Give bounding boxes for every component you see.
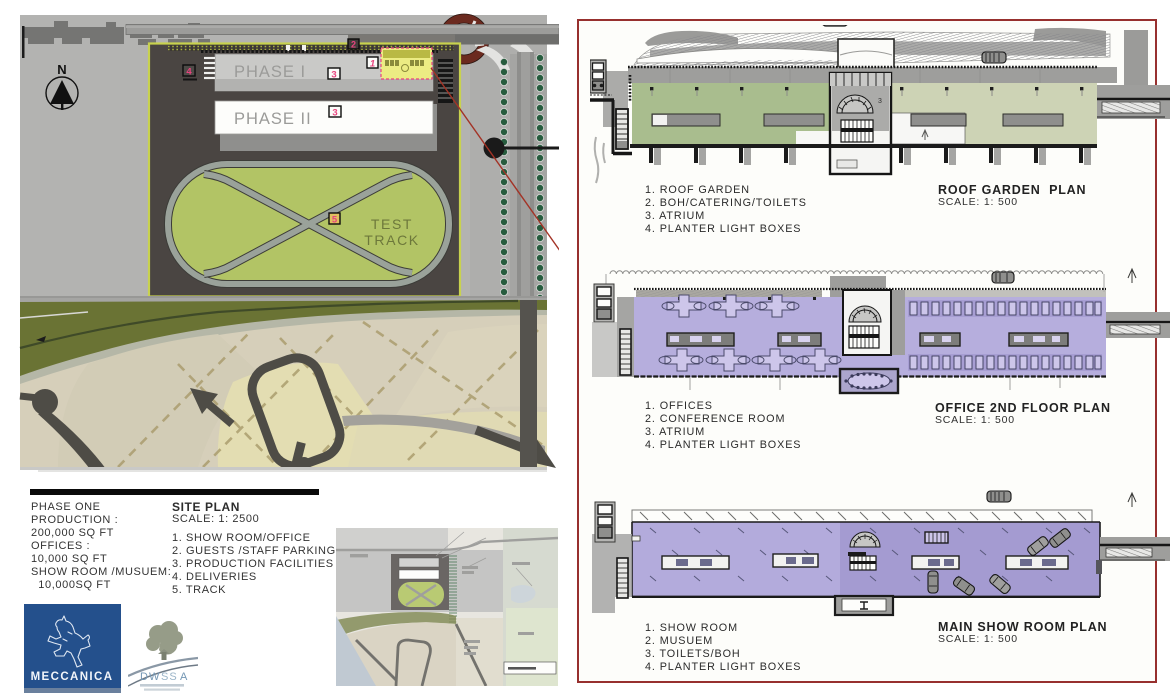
svg-text:DW: DW xyxy=(140,671,160,683)
svg-text:3: 3 xyxy=(331,70,336,81)
svg-text:PHASE II: PHASE II xyxy=(234,110,312,128)
svg-text:MECCANICA: MECCANICA xyxy=(31,671,114,683)
svg-text:3: 3 xyxy=(332,108,337,119)
svg-text:PHASE I: PHASE I xyxy=(234,63,306,81)
svg-text:SS: SS xyxy=(161,671,178,683)
svg-text:5: 5 xyxy=(332,215,338,226)
svg-text:4: 4 xyxy=(186,67,192,78)
svg-text:2: 2 xyxy=(351,40,356,50)
svg-text:TEST: TEST xyxy=(371,216,413,232)
svg-text:1: 1 xyxy=(370,59,375,70)
svg-text:TRACK: TRACK xyxy=(364,232,419,248)
svg-text:3: 3 xyxy=(878,98,882,105)
svg-text:N: N xyxy=(57,62,66,77)
svg-text:A: A xyxy=(180,671,188,683)
